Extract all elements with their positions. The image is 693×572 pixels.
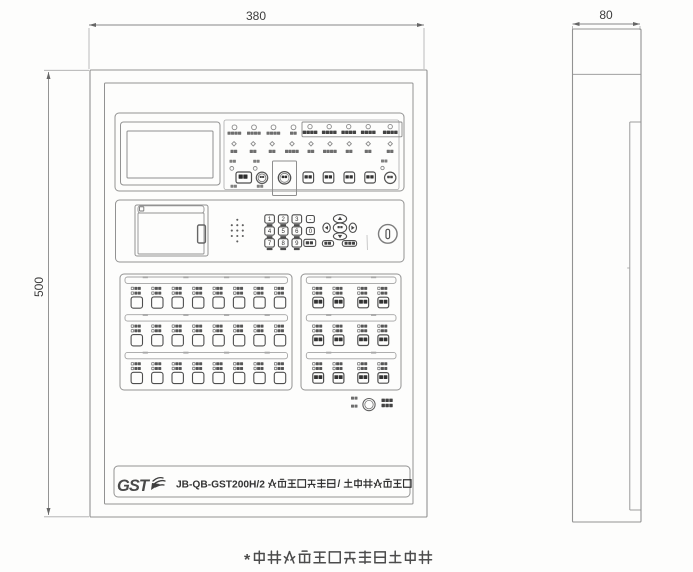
svg-text:JB-QB-GST200H/2: JB-QB-GST200H/2 [176,480,265,491]
svg-text:80: 80 [599,8,613,22]
svg-text:-: - [309,217,311,223]
svg-text:GST: GST [117,477,151,495]
svg-text:380: 380 [246,9,266,23]
svg-text:*: * [244,552,251,569]
svg-text:500: 500 [32,277,46,297]
svg-text:/: / [338,479,341,490]
